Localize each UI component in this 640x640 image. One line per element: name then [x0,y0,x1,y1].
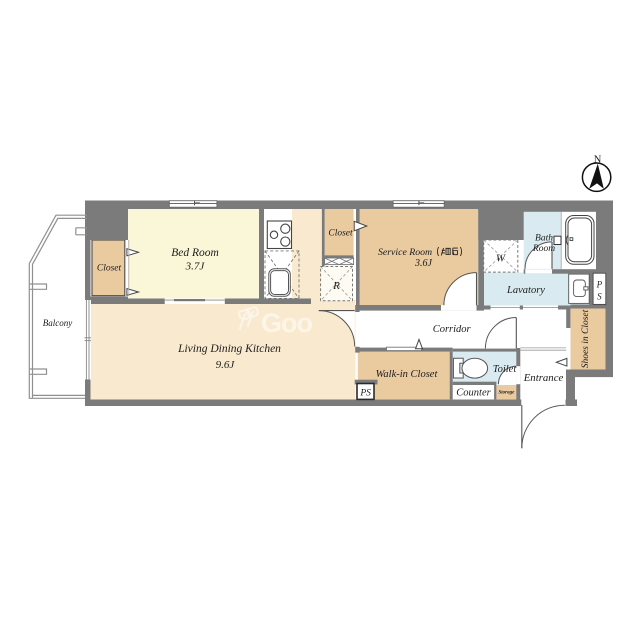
svg-text:9.6J: 9.6J [216,359,236,371]
svg-text:3.6J: 3.6J [414,258,433,269]
svg-text:Lavatory: Lavatory [506,285,545,296]
svg-text:Corridor: Corridor [433,324,472,335]
svg-text:Bath: Bath [535,234,553,244]
svg-text:3.7J: 3.7J [185,261,206,273]
svg-text:Closet: Closet [97,264,122,274]
svg-text:Walk-in Closet: Walk-in Closet [376,369,439,380]
svg-text:Service Room: Service Room [378,247,432,258]
svg-text:W: W [496,253,506,265]
svg-text:S: S [597,292,602,302]
svg-text:PS: PS [359,388,371,398]
svg-text:Room: Room [532,244,555,254]
svg-text:Living Dining Kitchen: Living Dining Kitchen [177,343,281,355]
svg-text:Counter: Counter [456,388,491,399]
svg-text:Goo: Goo [261,308,312,338]
svg-text:Entrance: Entrance [523,372,564,384]
svg-text:Bed Room: Bed Room [171,247,219,259]
svg-text:Toilet: Toilet [493,364,518,375]
svg-text:P: P [596,280,603,290]
svg-text:Storage: Storage [498,390,515,395]
svg-text:R: R [332,280,340,292]
svg-text:Shoes in Closet: Shoes in Closet [581,309,591,368]
svg-text:Closet: Closet [328,229,353,239]
svg-text:Balcony: Balcony [43,318,73,328]
